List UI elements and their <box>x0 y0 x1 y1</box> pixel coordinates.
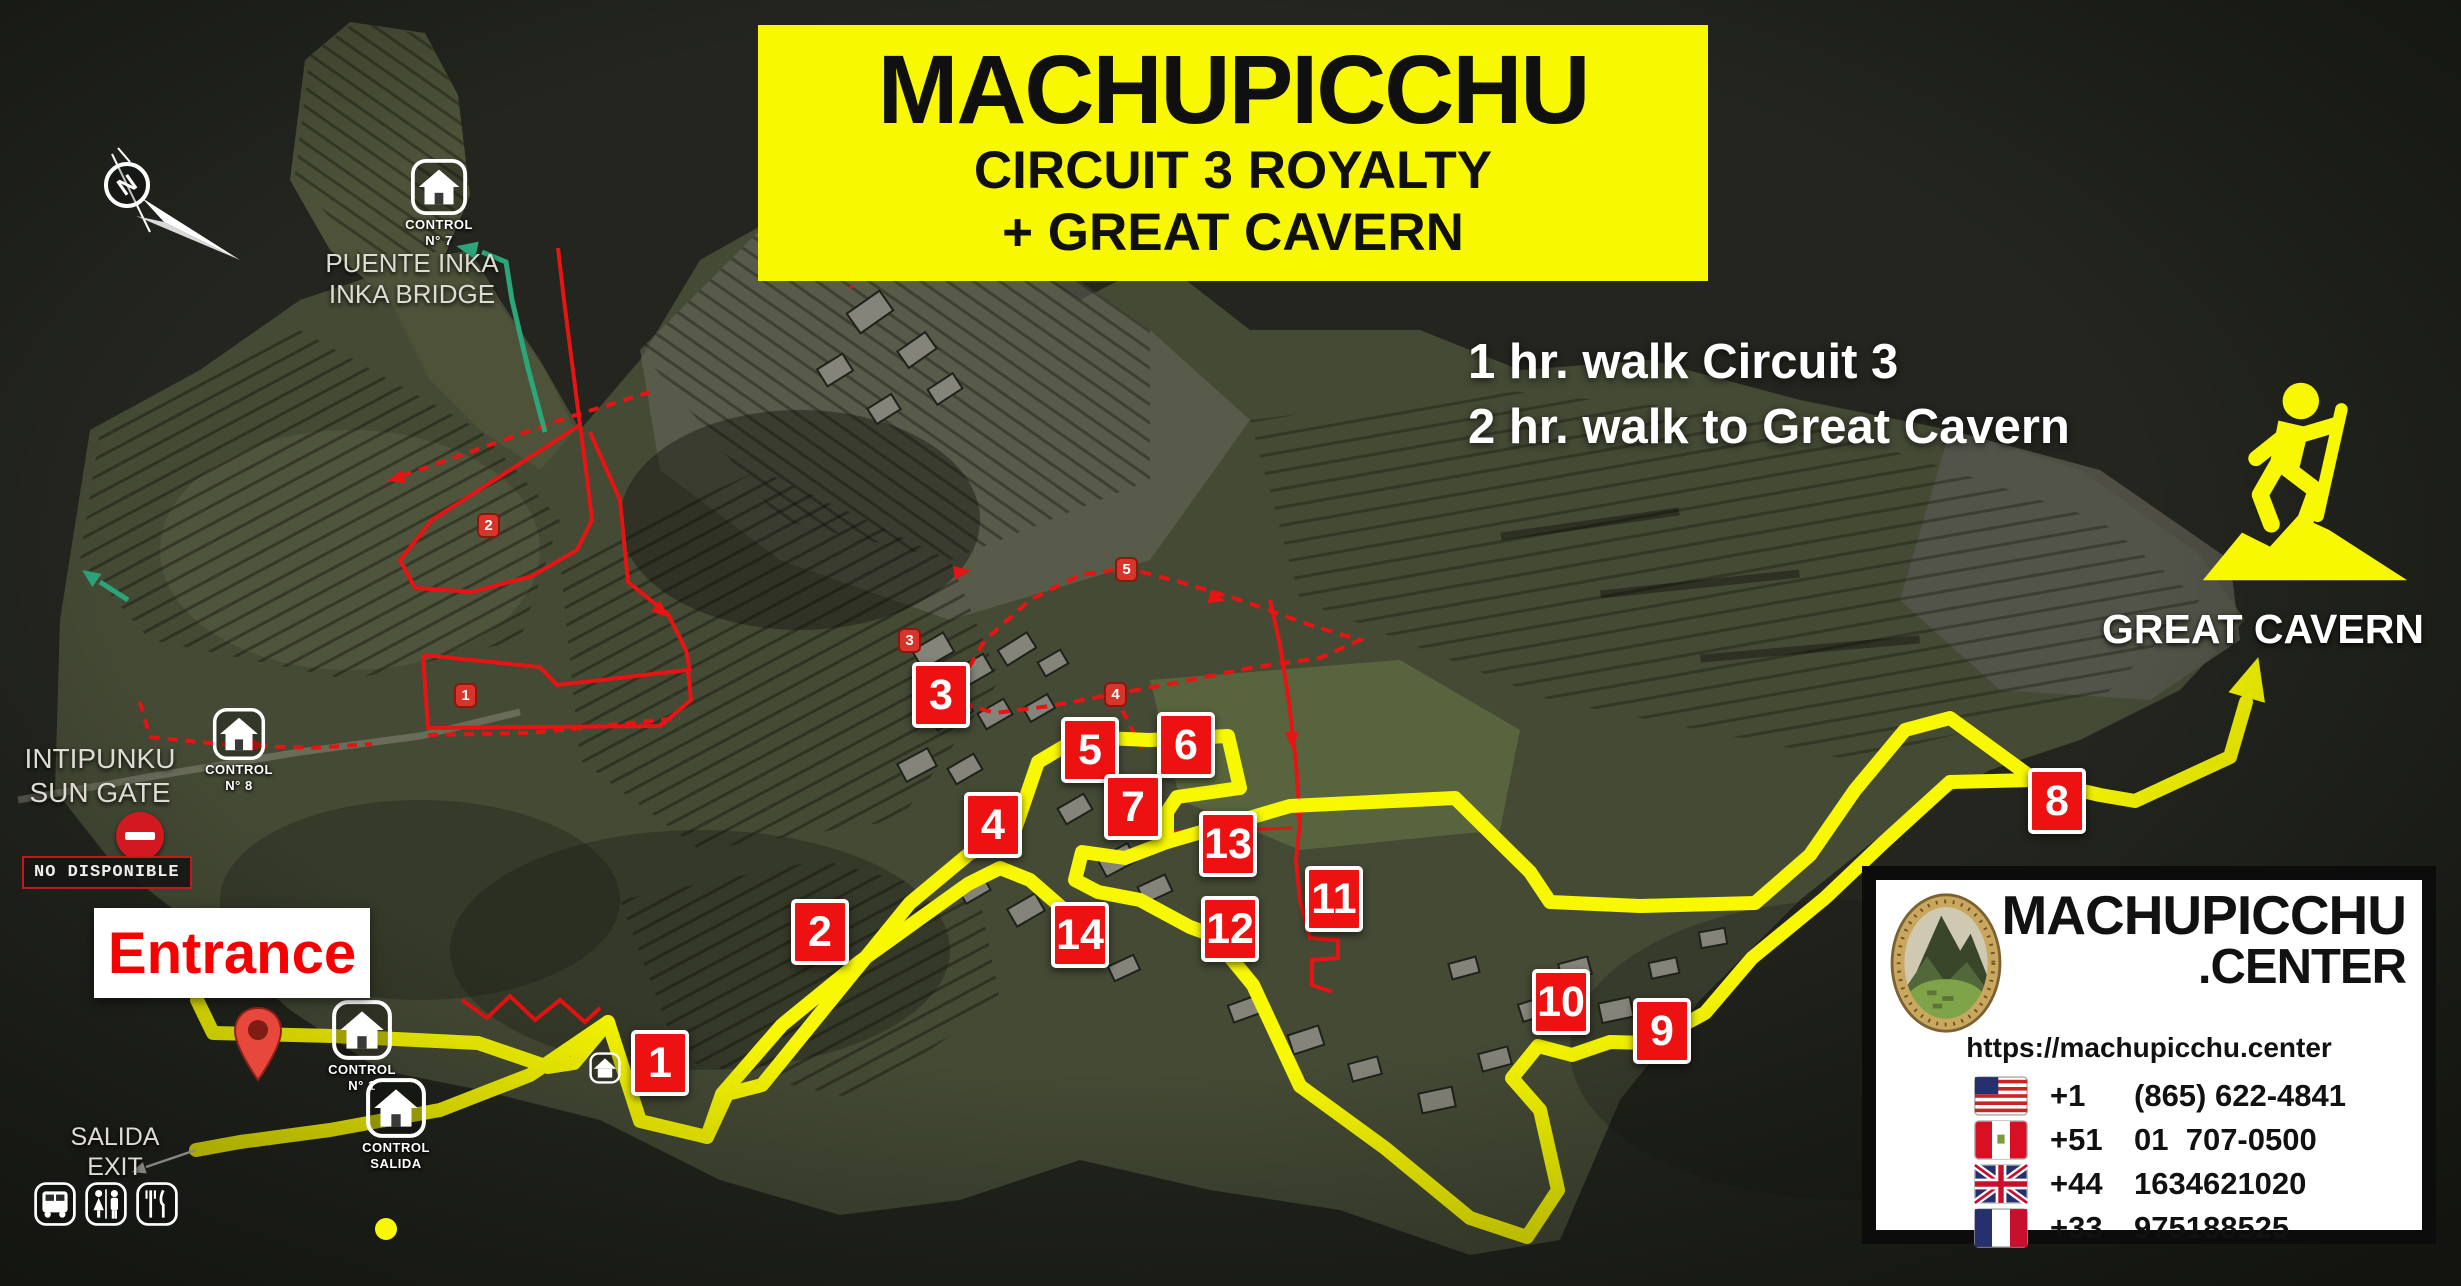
waypoint-marker-1: 1 <box>631 1030 689 1096</box>
exit-line: EXIT <box>30 1152 200 1182</box>
waypoint-marker-11: 11 <box>1305 866 1363 932</box>
phone-number: 1634621020 <box>2134 1166 2306 1202</box>
entrance-label: Entrance <box>94 908 370 998</box>
control-n1-label-line1: CONTROL <box>328 1063 396 1077</box>
inka-bridge-label: PUENTE INKA INKA BRIDGE <box>312 248 512 310</box>
phone-row-uk: +44 1634621020 <box>1974 1164 2306 1204</box>
usa-flag-icon <box>1974 1076 2028 1116</box>
france-flag-icon <box>1974 1208 2028 1248</box>
compass-north-icon: N <box>90 140 260 270</box>
restroom-icon <box>85 1182 127 1226</box>
control-n7-label-line2: N° 7 <box>425 234 452 248</box>
website-url: https://machupicchu.center <box>1876 1032 2422 1064</box>
phone-number: 975188525 <box>2134 1210 2289 1246</box>
title-banner: MACHUPICCHU CIRCUIT 3 ROYALTY + GREAT CA… <box>758 25 1708 281</box>
walk-duration-info: 1 hr. walk Circuit 3 2 hr. walk to Great… <box>1468 330 2070 459</box>
waypoint-marker-9: 9 <box>1633 998 1691 1064</box>
yellow-dot-marker <box>375 1218 397 1240</box>
sub-marker-3: 3 <box>898 628 921 653</box>
small-house-icon <box>589 1052 621 1084</box>
phone-number: (865) 622-4841 <box>2134 1078 2346 1114</box>
no-entry-icon <box>116 812 164 860</box>
map-poster: MACHUPICCHU CIRCUIT 3 ROYALTY + GREAT CA… <box>0 0 2461 1286</box>
waypoint-marker-10: 10 <box>1532 969 1590 1035</box>
waypoint-marker-2: 2 <box>791 899 849 965</box>
inka-bridge-line1: PUENTE INKA <box>312 248 512 279</box>
waypoint-marker-13: 13 <box>1199 811 1257 877</box>
waypoint-marker-14: 14 <box>1051 902 1109 968</box>
great-cavern-label: GREAT CAVERN <box>2083 606 2443 653</box>
control-salida-label-line2: SALIDA <box>370 1157 421 1171</box>
sub-marker-5: 5 <box>1115 557 1138 582</box>
poster-title: MACHUPICCHU <box>878 41 1589 140</box>
control-house-icon <box>331 999 393 1061</box>
brand-line2: .CENTER <box>2001 943 2406 992</box>
sub-marker-2: 2 <box>477 513 500 538</box>
brand-wordmark: MACHUPICCHU .CENTER <box>2001 888 2406 992</box>
phone-country-code: +51 <box>2050 1122 2134 1158</box>
waypoint-marker-3: 3 <box>912 662 970 728</box>
control-salida-label-line1: CONTROL <box>362 1141 430 1155</box>
poster-subtitle-2: + GREAT CAVERN <box>1002 202 1464 265</box>
control-n7-marker: CONTROL N° 7 <box>379 158 499 248</box>
phone-number: 01 707-0500 <box>2134 1122 2317 1158</box>
hiker-mountain-icon <box>2200 372 2410 584</box>
control-house-icon <box>365 1077 427 1139</box>
control-house-icon <box>410 158 468 216</box>
salida-exit-label: SALIDA EXIT <box>30 1122 200 1182</box>
phone-country-code: +44 <box>2050 1166 2134 1202</box>
waypoint-marker-6: 6 <box>1157 712 1215 778</box>
poster-subtitle-1: CIRCUIT 3 ROYALTY <box>974 140 1492 203</box>
phone-row-usa: +1 (865) 622-4841 <box>1974 1076 2346 1116</box>
waypoint-marker-7: 7 <box>1104 774 1162 840</box>
control-n8-marker: CONTROL N° 8 <box>184 707 294 793</box>
control-n8-label-line2: N° 8 <box>225 779 252 793</box>
control-house-icon <box>212 707 266 761</box>
control-n8-label-line1: CONTROL <box>205 763 273 777</box>
phone-country-code: +33 <box>2050 1210 2134 1246</box>
uk-flag-icon <box>1974 1164 2028 1204</box>
phone-row-france: +33 975188525 <box>1974 1208 2289 1248</box>
sun-gate-line1: INTIPUNKU <box>0 742 200 776</box>
sub-marker-1: 1 <box>454 683 477 708</box>
phone-country-code: +1 <box>2050 1078 2134 1114</box>
control-n7-label-line1: CONTROL <box>405 218 473 232</box>
contact-card-body: MACHUPICCHU .CENTER https://machupicchu.… <box>1876 880 2422 1230</box>
waypoint-marker-12: 12 <box>1201 896 1259 962</box>
sub-marker-4: 4 <box>1104 682 1127 707</box>
restaurant-icon <box>136 1182 178 1226</box>
sun-gate-label: INTIPUNKU SUN GATE <box>0 742 200 809</box>
machupicchu-center-logo <box>1888 892 2004 1034</box>
control-salida-marker: CONTROL SALIDA <box>336 1077 456 1171</box>
waypoint-marker-4: 4 <box>964 792 1022 858</box>
sun-gate-line2: SUN GATE <box>0 776 200 810</box>
entrance-pin-icon <box>232 1006 284 1082</box>
inka-bridge-line2: INKA BRIDGE <box>312 279 512 310</box>
sun-gate-status-badge: NO DISPONIBLE <box>22 856 192 889</box>
walk-info-line2: 2 hr. walk to Great Cavern <box>1468 395 2070 460</box>
phone-row-peru: +51 01 707-0500 <box>1974 1120 2317 1160</box>
brand-line1: MACHUPICCHU <box>2001 888 2406 943</box>
bus-icon <box>34 1182 76 1226</box>
peru-flag-icon <box>1974 1120 2028 1160</box>
amenities-row <box>34 1182 178 1226</box>
salida-line: SALIDA <box>30 1122 200 1152</box>
contact-info-card: MACHUPICCHU .CENTER https://machupicchu.… <box>1862 866 2436 1244</box>
walk-info-line1: 1 hr. walk Circuit 3 <box>1468 330 2070 395</box>
waypoint-marker-8: 8 <box>2028 768 2086 834</box>
